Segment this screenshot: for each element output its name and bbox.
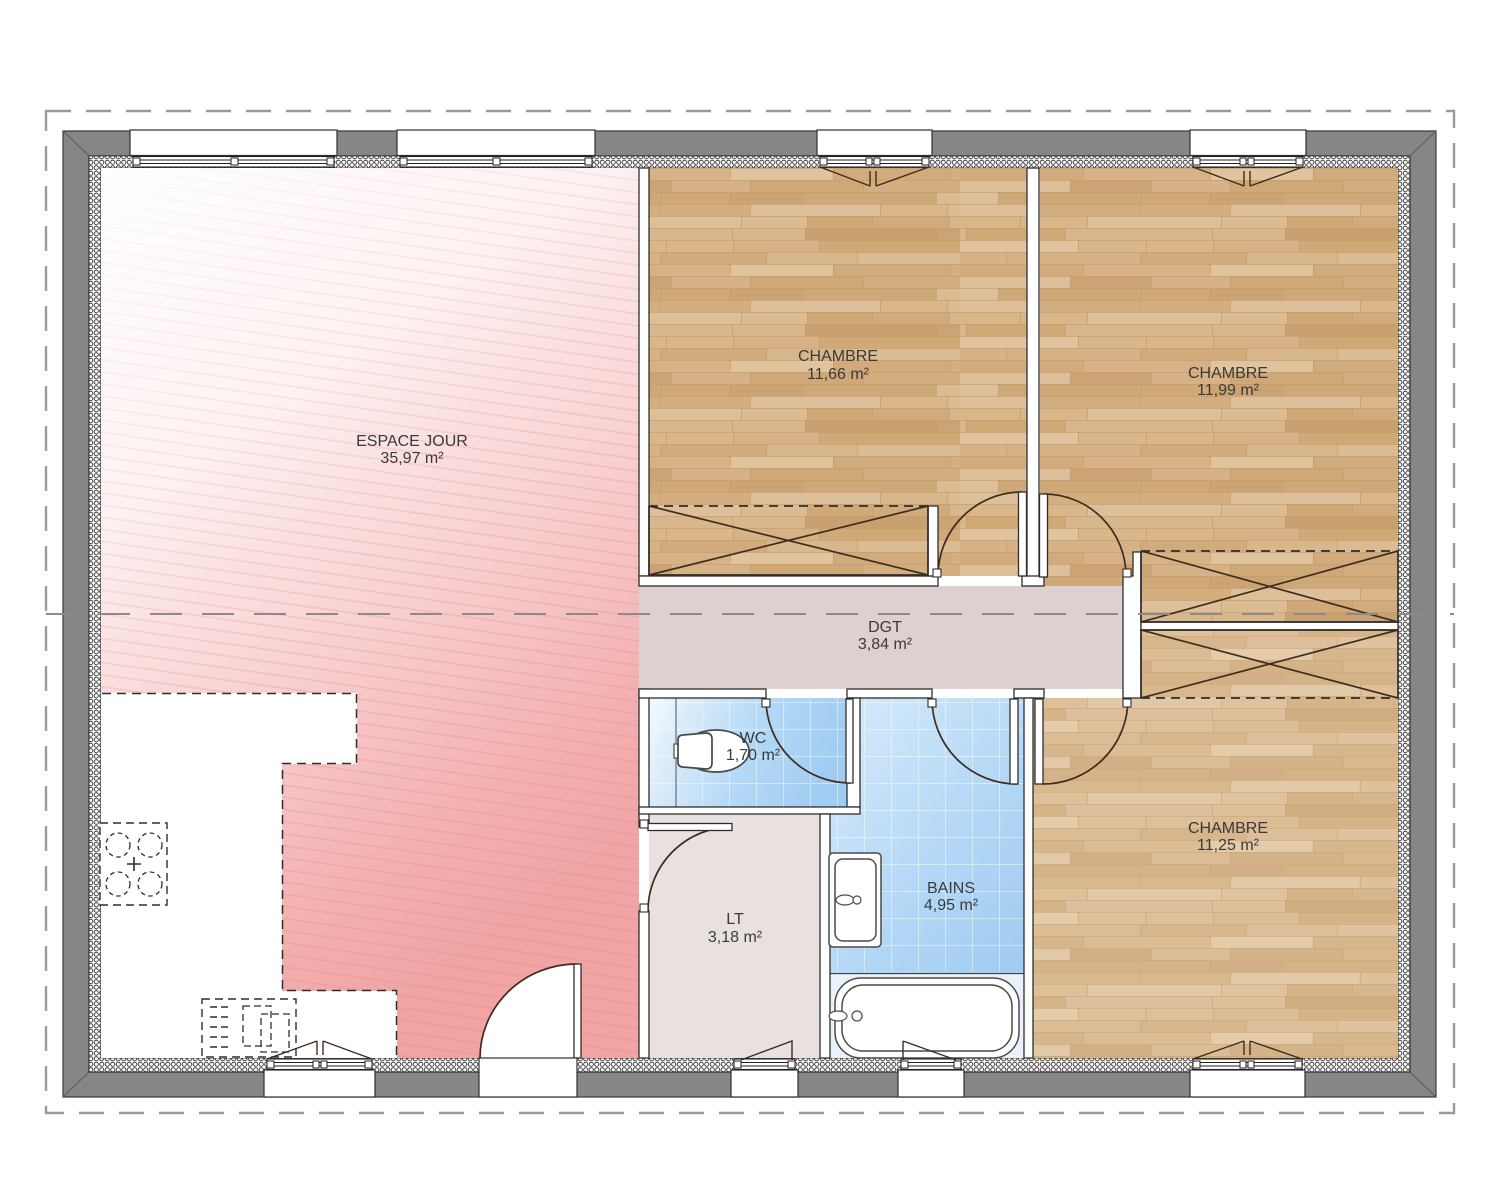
svg-text:35,97 m²: 35,97 m² (380, 450, 444, 467)
svg-text:3,84 m²: 3,84 m² (858, 636, 913, 653)
svg-text:LT: LT (726, 911, 744, 928)
svg-text:CHAMBRE: CHAMBRE (798, 348, 878, 365)
svg-text:11,25 m²: 11,25 m² (1197, 837, 1260, 854)
svg-text:CHAMBRE: CHAMBRE (1188, 820, 1268, 837)
svg-text:3,18 m²: 3,18 m² (708, 929, 763, 946)
svg-text:ESPACE JOUR: ESPACE JOUR (356, 433, 468, 450)
svg-text:4,95 m²: 4,95 m² (924, 897, 979, 914)
svg-text:11,99 m²: 11,99 m² (1197, 382, 1260, 399)
svg-text:CHAMBRE: CHAMBRE (1188, 365, 1268, 382)
svg-text:BAINS: BAINS (927, 880, 975, 897)
svg-text:11,66 m²: 11,66 m² (807, 366, 870, 383)
svg-text:1,70 m²: 1,70 m² (726, 747, 781, 764)
svg-text:WC: WC (740, 730, 767, 747)
svg-text:DGT: DGT (868, 619, 902, 636)
